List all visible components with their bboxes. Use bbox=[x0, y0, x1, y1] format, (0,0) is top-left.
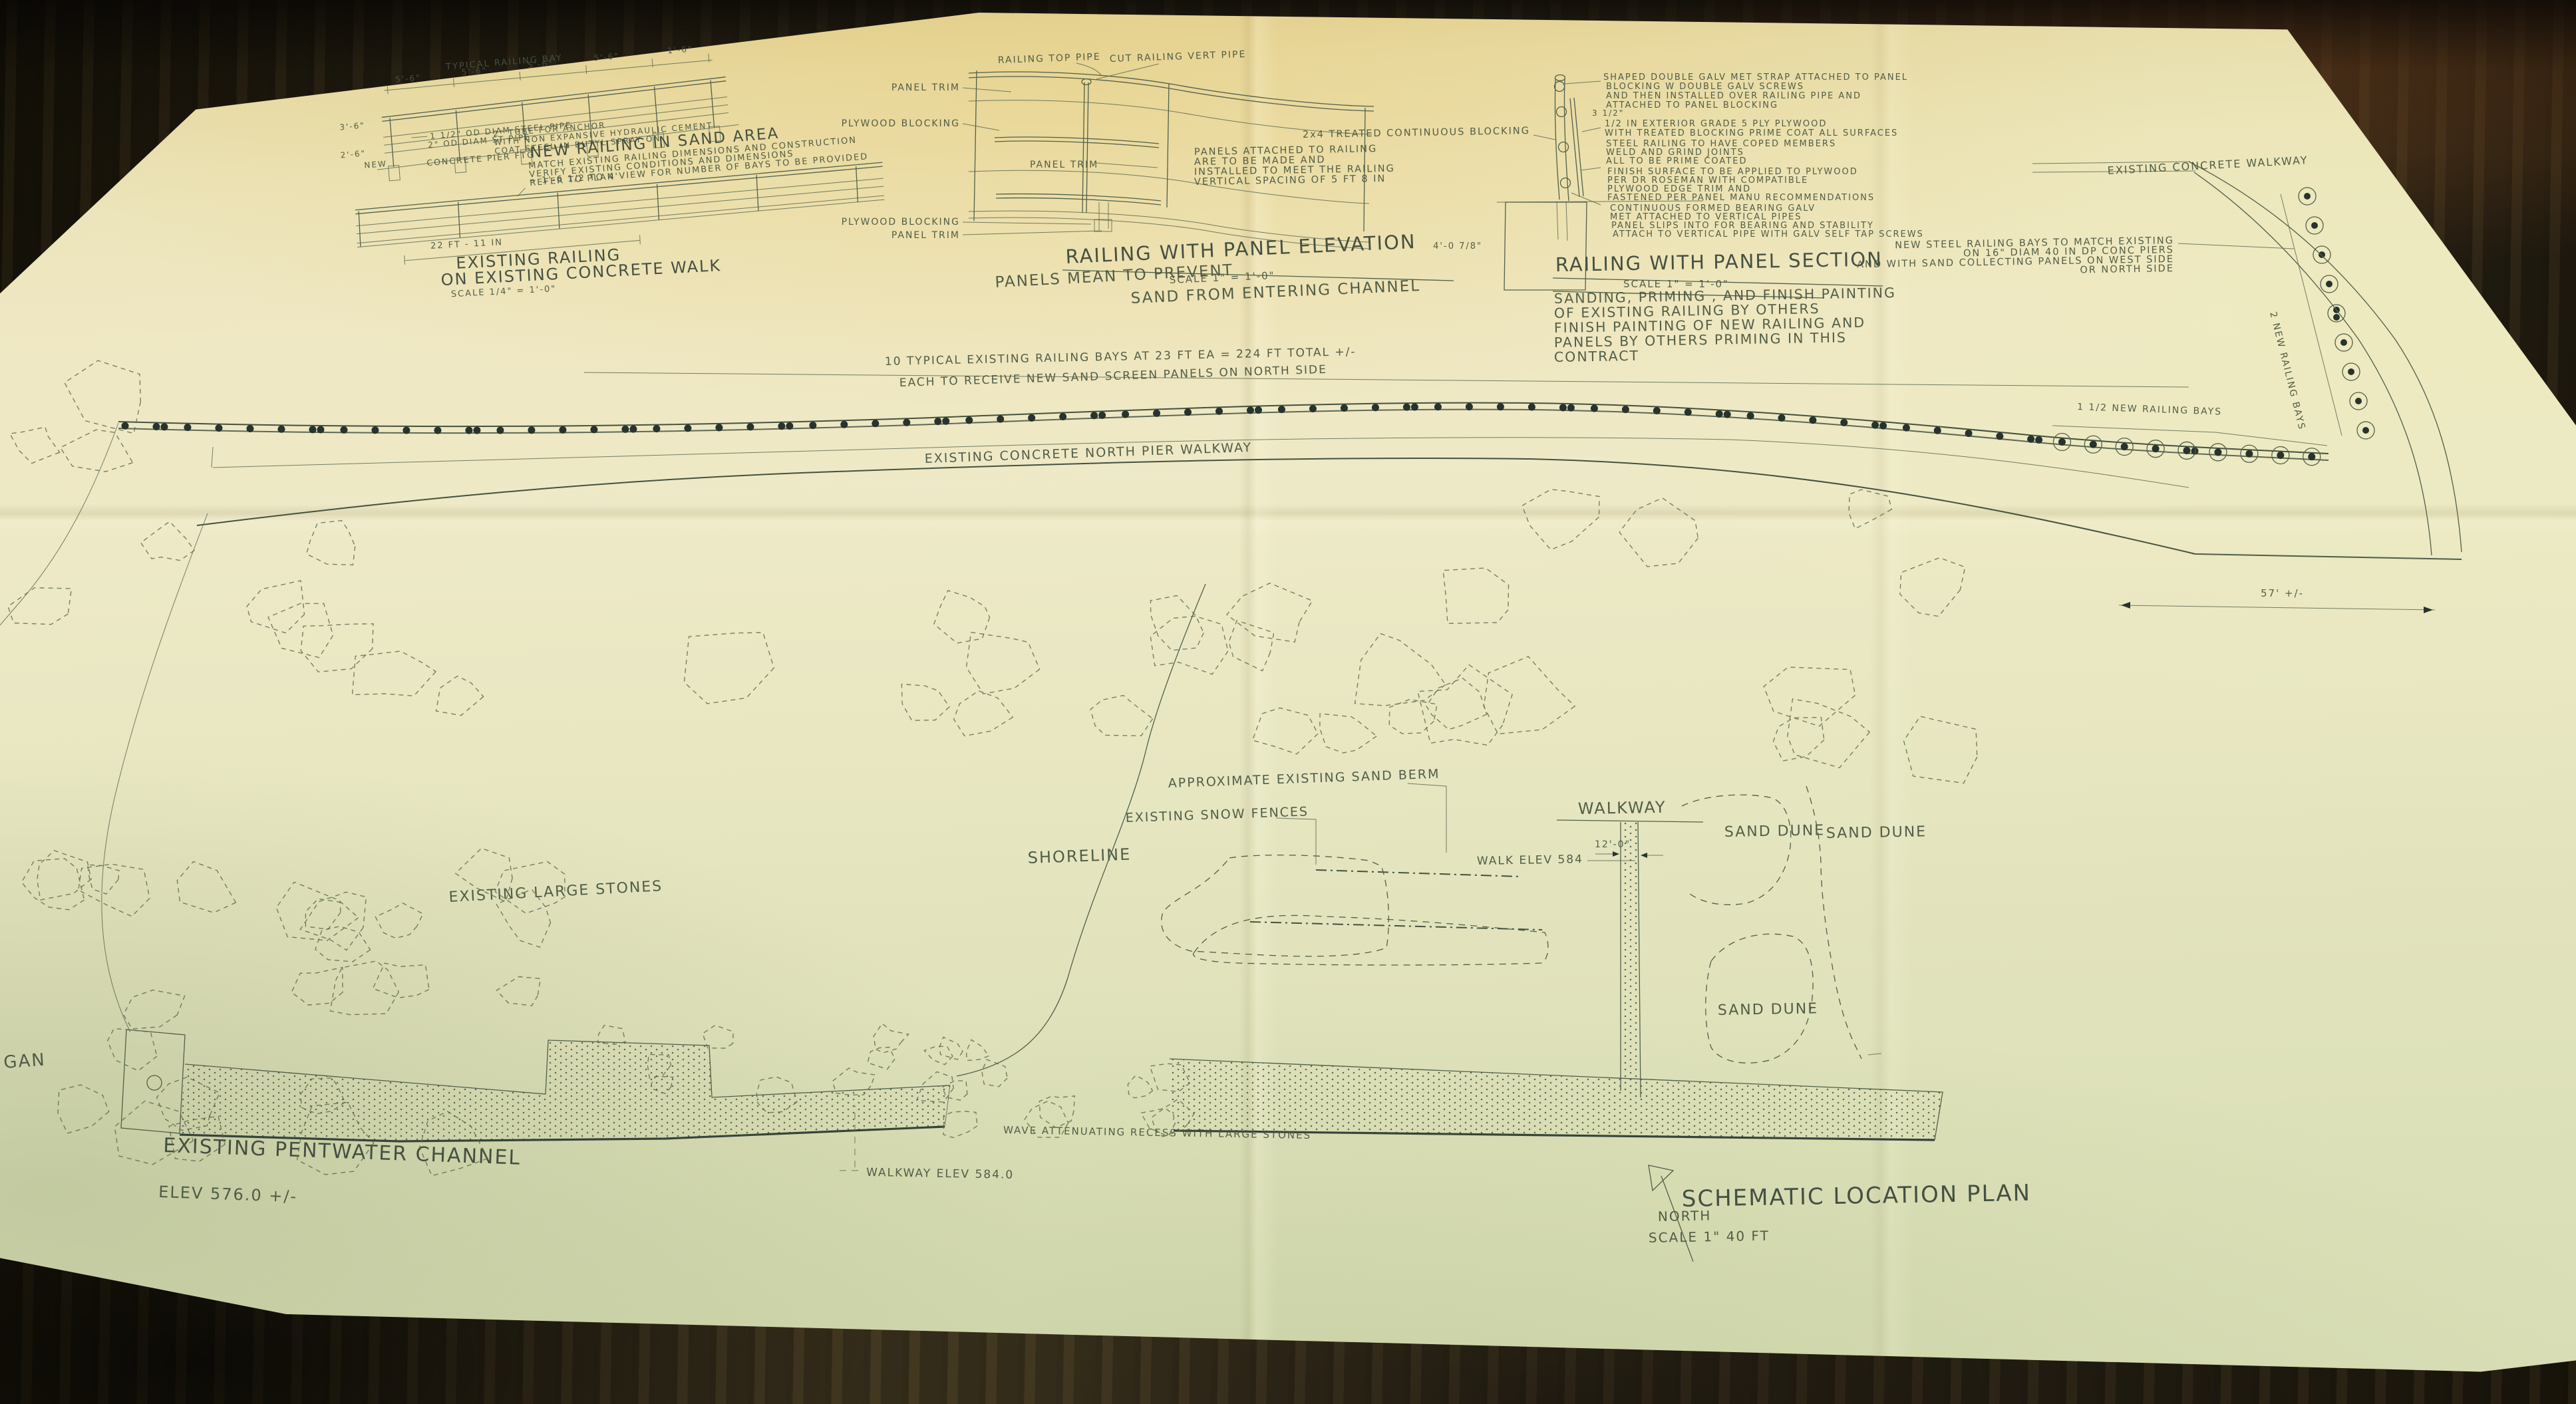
plywood-note: 1/2 IN EXTERIOR GRADE 5 PLY PLYWOOD bbox=[1605, 119, 1827, 129]
panel-trim-label: PANEL TRIM bbox=[891, 230, 960, 241]
lake-michigan-fragment: GAN bbox=[3, 1050, 46, 1073]
new-bays-note: OR NORTH SIDE bbox=[2080, 263, 2174, 275]
blueprint-drawing: TYPICAL RAILING BAY 5'-6" 5'-6" 5'-6" 5'… bbox=[0, 0, 2576, 1404]
panel-trim-label: PANEL TRIM bbox=[891, 82, 960, 93]
footing-label: CONCRETE PIER FTG bbox=[426, 150, 535, 168]
pier-end-dim: 57' +/- bbox=[2261, 587, 2304, 599]
bearing-note: ATTACH TO VERTICAL PIPE WITH GALV SELF T… bbox=[1613, 229, 1924, 239]
left-dim: 3'-6" bbox=[339, 120, 365, 132]
stone-outlines bbox=[8, 360, 1977, 1176]
one-half-bays-label: 1 1/2 NEW RAILING BAYS bbox=[2077, 402, 2222, 418]
plywood-note: WITH TREATED BLOCKING PRIME COAT ALL SUR… bbox=[1605, 128, 1898, 138]
section-title: RAILING WITH PANEL SECTION bbox=[1555, 247, 1883, 276]
panel-offset-dim: 3 1/2" bbox=[1592, 108, 1624, 118]
railing-top-pipe-label: RAILING TOP PIPE bbox=[998, 52, 1101, 66]
strap-note: AND THEN INSTALLED OVER RAILING PIPE AND bbox=[1606, 91, 1861, 101]
location-plan-title: SCHEMATIC LOCATION PLAN bbox=[1681, 1180, 2031, 1212]
north-label: NORTH bbox=[1658, 1208, 1712, 1224]
strap-note: BLOCKING W DOUBLE GALV SCREWS bbox=[1606, 82, 1804, 92]
strap-note: ATTACHED TO PANEL BLOCKING bbox=[1606, 100, 1778, 110]
walkway-elev-label: WALKWAY ELEV 584.0 bbox=[866, 1166, 1014, 1182]
snow-fences-label: EXISTING SNOW FENCES bbox=[1125, 804, 1309, 825]
footing-depth-dim: 4'-0 7/8" bbox=[1433, 241, 1482, 251]
bay-dim: 5'-6" bbox=[461, 66, 487, 77]
plywood-blocking-label: PLYWOOD BLOCKING bbox=[842, 118, 960, 129]
shoreline-label: SHORELINE bbox=[1027, 845, 1131, 867]
bay-dim: 5'-6" bbox=[395, 73, 421, 84]
cut-vert-pipe-label: CUT RAILING VERT PIPE bbox=[1110, 49, 1247, 65]
sand-dune-label: SAND DUNE bbox=[1826, 823, 1927, 842]
bay-dim: 5'-6" bbox=[593, 51, 619, 63]
detail-panel-elevation: RAILING TOP PIPE CUT RAILING VERT PIPE P… bbox=[842, 49, 1555, 307]
finish-note: FASTENED PER PANEL MANU RECOMMENDATIONS bbox=[1607, 193, 1875, 203]
large-stones-label: EXISTING LARGE STONES bbox=[448, 878, 663, 906]
location-scale-label: SCALE 1" 40 FT bbox=[1649, 1228, 1770, 1246]
walkway-label: WALKWAY bbox=[1578, 798, 1667, 818]
plywood-blocking-label: PLYWOOD BLOCKING bbox=[842, 217, 960, 227]
panel-trim-label: PANEL TRIM bbox=[1030, 160, 1098, 170]
sand-dune-label: SAND DUNE bbox=[1718, 1000, 1819, 1019]
new-pier-circles-column bbox=[2299, 188, 2374, 439]
walkway-width-dim: 12'-0" bbox=[1595, 839, 1631, 850]
treated-blocking-label: 2x4 TREATED CONTINUOUS BLOCKING bbox=[1303, 126, 1530, 140]
railing-post-dots bbox=[121, 403, 2320, 466]
steel-note: ALL TO BE PRIME COATED bbox=[1606, 156, 1747, 166]
bay-dim: 5'-6" bbox=[528, 59, 554, 70]
walk-elev-label: WALK ELEV 584 bbox=[1477, 853, 1583, 868]
channel-elev-label: ELEV 576.0 +/- bbox=[158, 1183, 298, 1206]
panels-note: EACH TO RECEIVE NEW SAND SCREEN PANELS O… bbox=[899, 363, 1328, 390]
sand-dune-label: SAND DUNE bbox=[1724, 822, 1826, 841]
bay-dim: 1'-6" bbox=[667, 44, 693, 55]
painting-note: CONTRACT bbox=[1554, 348, 1640, 365]
left-dim: 2'-6" bbox=[340, 148, 366, 160]
detail-panel-section: 4'-0 7/8" SHAPED DOUBLE GALV MET STRAP A… bbox=[1433, 72, 1924, 365]
photo-of-blueprint-on-table: TYPICAL RAILING BAY 5'-6" 5'-6" 5'-6" 5'… bbox=[0, 0, 2576, 1404]
concrete-walkway-label: EXISTING CONCRETE WALKWAY bbox=[2107, 154, 2309, 177]
two-new-bays-label: 2 NEW RAILING BAYS bbox=[2267, 311, 2307, 432]
elevation-title: RAILING WITH PANEL ELEVATION bbox=[1065, 230, 1416, 268]
strap-note: SHAPED DOUBLE GALV MET STRAP ATTACHED TO… bbox=[1603, 72, 1908, 82]
sand-berm-label: APPROXIMATE EXISTING SAND BERM bbox=[1168, 767, 1440, 791]
new-label: NEW bbox=[364, 159, 387, 170]
pier-walkway-label: EXISTING CONCRETE NORTH PIER WALKWAY bbox=[924, 440, 1252, 466]
